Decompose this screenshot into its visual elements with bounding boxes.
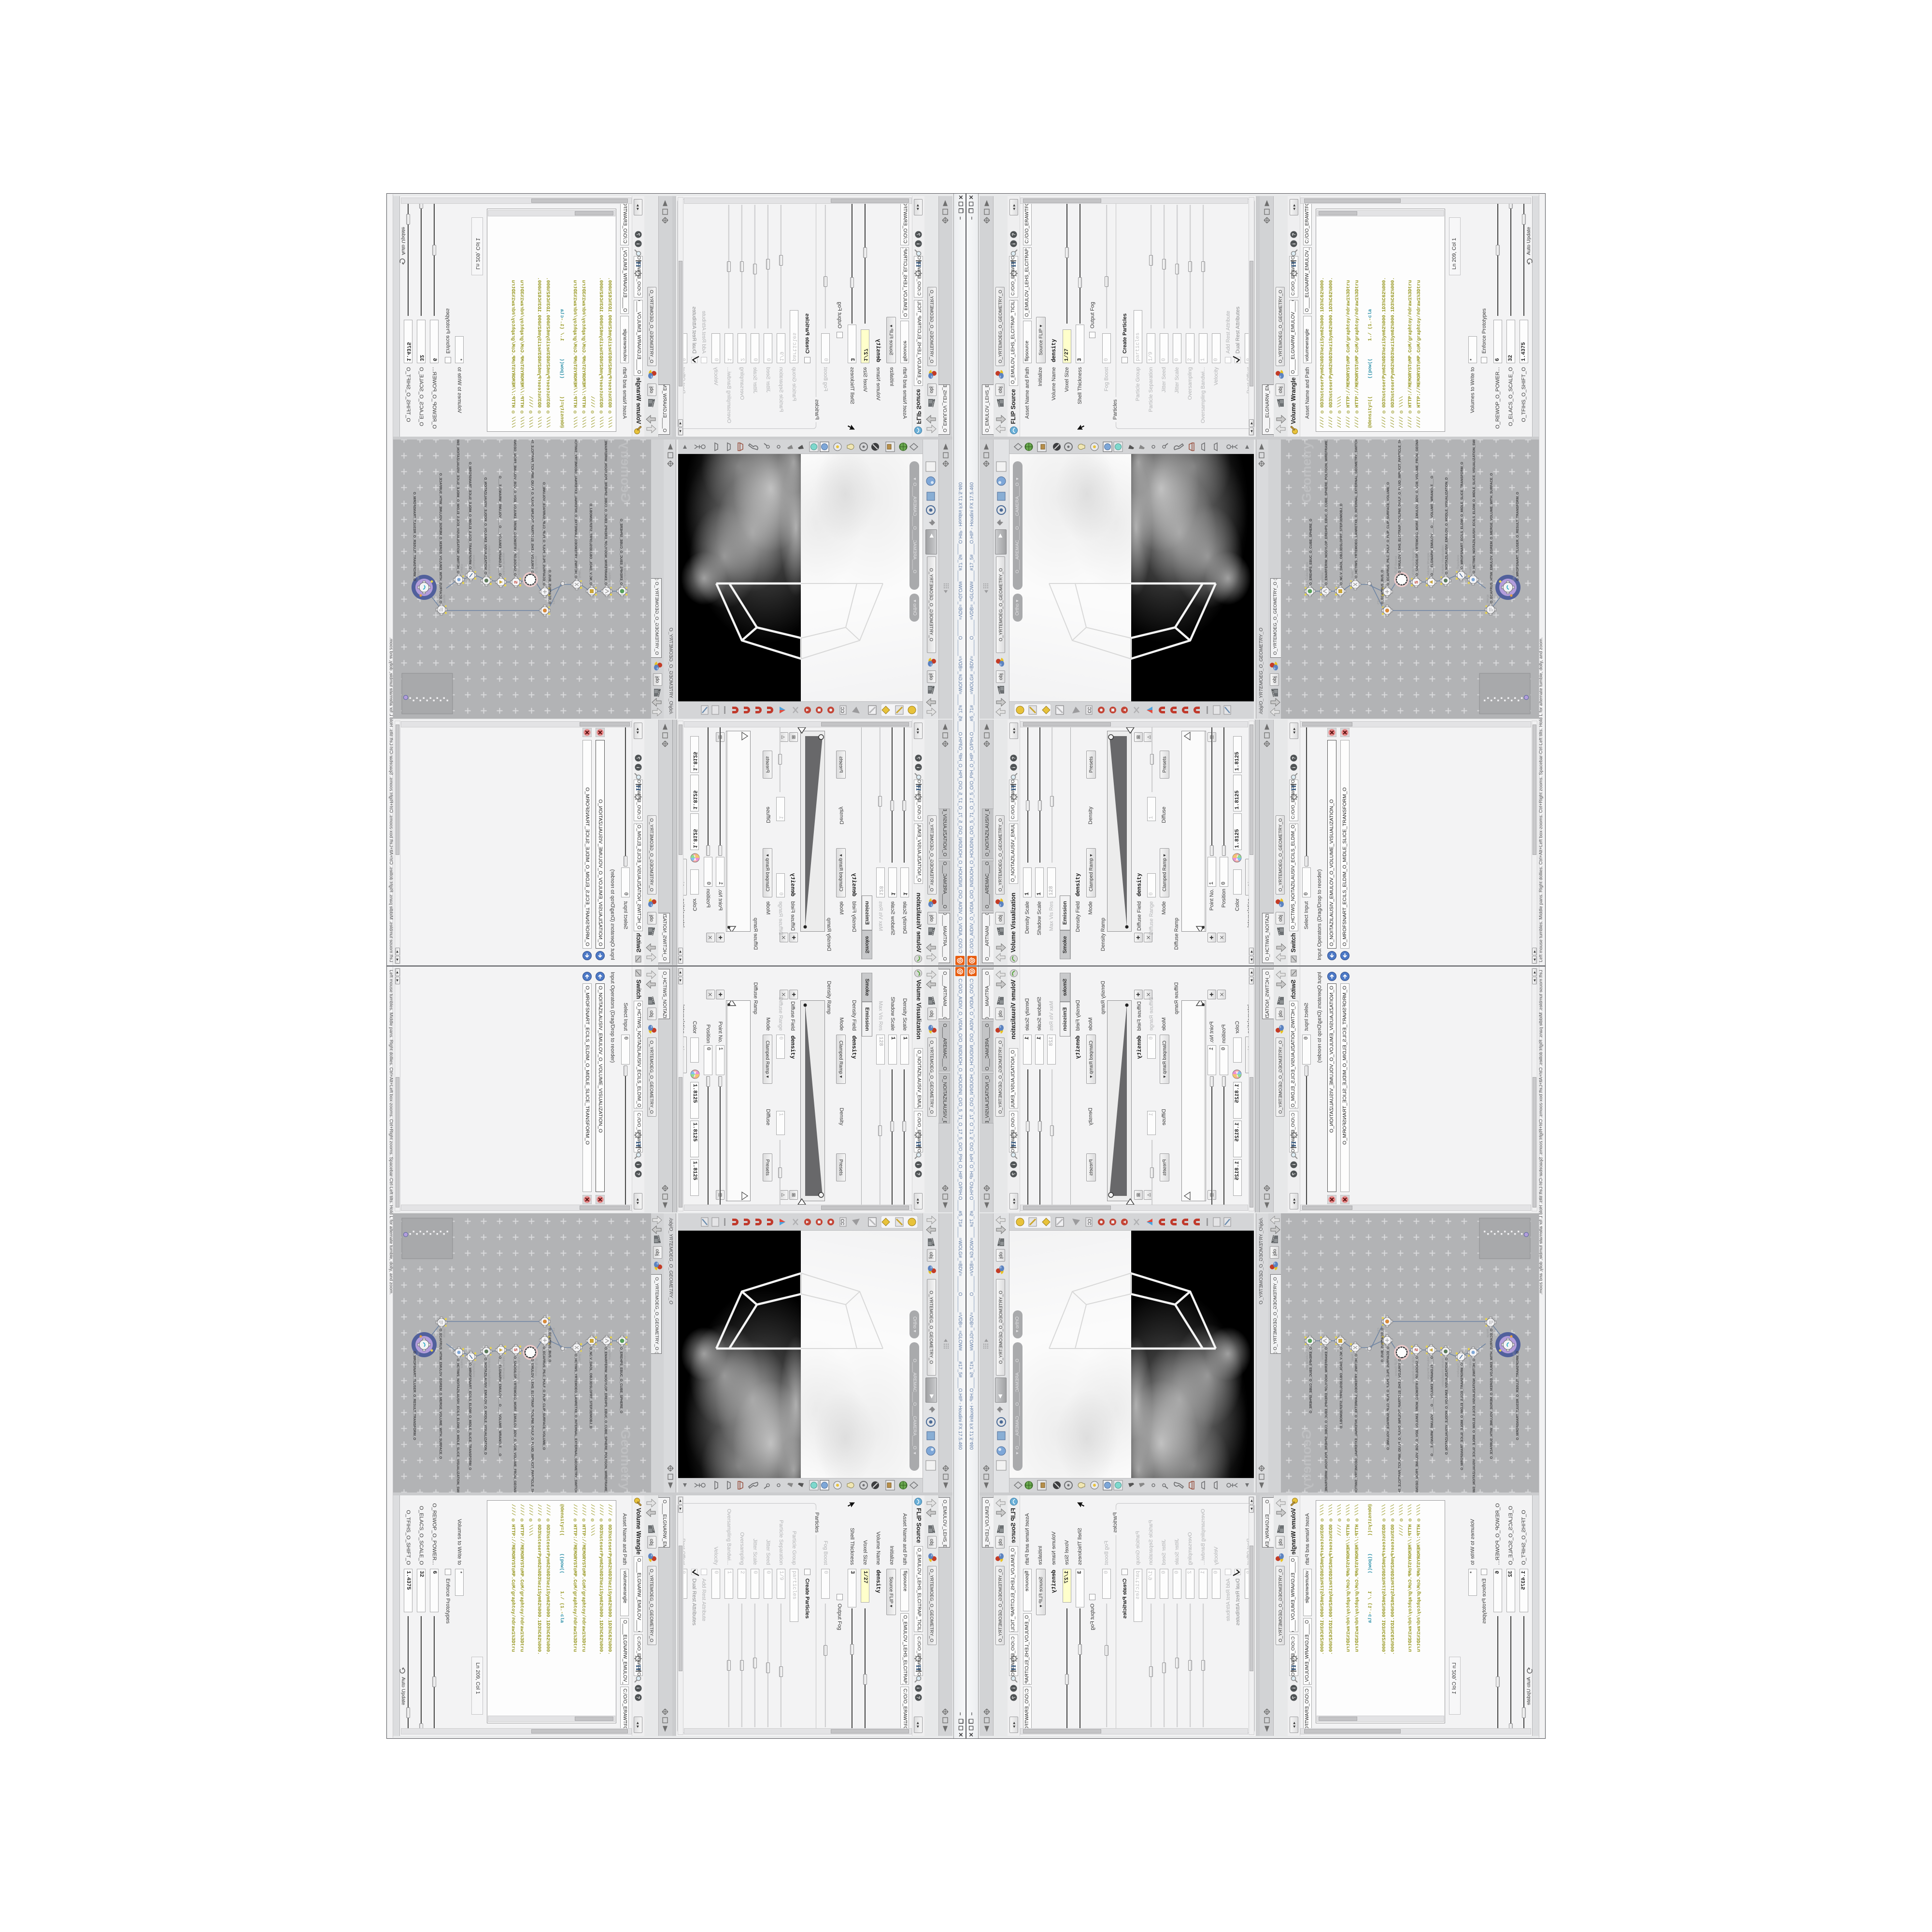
svg-text:O_NOITAZILAUSIV_EMULOV_O_MODLE: O_NOITAZILAUSIV_EMULOV_O_MODLE_VISUALIZA… xyxy=(483,477,487,574)
svg-text:Switch: Switch xyxy=(578,568,581,578)
svg-text:Clip: Clip xyxy=(1377,1328,1380,1334)
svg-text:O_EREHPS_EBUC_O_CUBE_SPHERE_O: O_EREHPS_EBUC_O_CUBE_SPHERE_O xyxy=(619,519,623,585)
svg-text:H: H xyxy=(915,1141,922,1147)
svg-text:H: H xyxy=(635,1141,642,1147)
svg-text:O_SNOGILOP_YRTEMOEG_MORF_EMULO: O_SNOGILOP_YRTEMOEG_MORF_EMULOV_BDV_O_VD… xyxy=(1416,1356,1419,1492)
svg-text:H: H xyxy=(635,1665,642,1671)
svg-text:PolyWire: PolyWire xyxy=(1321,1347,1324,1360)
svg-text:O_ECAFRUS_PILC_PULF_O_FLIP_CLI: O_ECAFRUS_PILC_PULF_O_FLIP_CLIP_SURFACE_… xyxy=(542,1347,545,1450)
svg-text:Switch: Switch xyxy=(460,564,463,573)
svg-text:Volume Wrangle: Volume Wrangle xyxy=(1427,1356,1430,1379)
svg-text:an_CubeSphere: an_CubeSphere xyxy=(1306,562,1309,585)
svg-text:H: H xyxy=(1010,785,1017,791)
svg-text:O_ECAFRUS_PILC_PULF_O_FLIP_CLI: O_ECAFRUS_PILC_PULF_O_FLIP_CLIP_SURFACE_… xyxy=(542,482,545,585)
svg-text:PolyWire: PolyWire xyxy=(608,572,611,585)
svg-text:O_ECAFRUS_HTIW_EMULOV_EGREM_O_: O_ECAFRUS_HTIW_EMULOV_EGREM_O_MERGE_VOLU… xyxy=(439,473,442,603)
svg-text:O_ECAFRUS_HTIW_EMULOV_EGREM_O_: O_ECAFRUS_HTIW_EMULOV_EGREM_O_MERGE_VOLU… xyxy=(1490,1329,1493,1459)
svg-text:Transform: Transform xyxy=(1457,555,1460,569)
svg-text:Transform: Transform xyxy=(472,1363,475,1377)
svg-text:O_ECAFRUS_BUS_O: O_ECAFRUS_BUS_O xyxy=(1381,569,1384,604)
svg-text:?: ? xyxy=(1292,233,1297,236)
svg-text:S: S xyxy=(513,1349,518,1351)
svg-text:O_SNOGILOP_YRTEMOEG_MORF_EMULO: O_SNOGILOP_YRTEMOEG_MORF_EMULOV_BDV_O_VD… xyxy=(513,1356,516,1492)
svg-text:H: H xyxy=(1290,1665,1297,1671)
svg-text:H: H xyxy=(1290,261,1297,267)
svg-text:Merge: Merge xyxy=(442,594,446,603)
svg-text:O_EREHPS_EBUC_O_CUBE_SPHERE_O: O_EREHPS_EBUC_O_CUBE_SPHERE_O xyxy=(1309,1347,1313,1413)
svg-text:O_HCTIWS_YRTEMOEG_LANRETXE_O_I: O_HCTIWS_YRTEMOEG_LANRETXE_O_INTERNAL_EX… xyxy=(574,440,577,578)
svg-text:Merge: Merge xyxy=(1486,1329,1490,1338)
svg-text:Volume Visualization: Volume Visualization xyxy=(487,545,491,574)
svg-text:?: ? xyxy=(635,233,640,236)
svg-text:H: H xyxy=(1010,261,1017,267)
svg-text:Transform: Transform xyxy=(1512,567,1516,581)
svg-text:?: ? xyxy=(1292,1173,1297,1176)
svg-text:H: H xyxy=(1290,1141,1297,1147)
svg-text:VDB from Polygons: VDB from Polygons xyxy=(517,1356,520,1384)
svg-text:H: H xyxy=(915,261,922,267)
svg-text:O_MROFSNART_TLUSER_O_RESULT_TR: O_MROFSNART_TLUSER_O_RESULT_TRANSFORM_O xyxy=(1516,492,1520,581)
svg-text:O_ECAFRUS_PILC_PULF_O_FLIP_CLI: O_ECAFRUS_PILC_PULF_O_FLIP_CLIP_SURFACE_… xyxy=(1387,482,1390,585)
svg-text:O_EMULOV_LEHS_ELCITRAP_TICILPM: O_EMULOV_LEHS_ELCITRAP_TICILPMI_DIULF_O_… xyxy=(530,440,534,573)
svg-text:O_NC.V_DAOL_OBJ.3DSLOFRT_STEP.: O_NC.V_DAOL_OBJ.3DSLOFRT_STEP.3DMOBJ_D xyxy=(589,1347,592,1428)
svg-text:Volume Wrangle: Volume Wrangle xyxy=(502,553,505,576)
svg-text:?: ? xyxy=(1292,756,1297,759)
svg-text:O_HCTIWS_NOITAZILAUSIV_ECILS_E: O_HCTIWS_NOITAZILAUSIV_ECILS_ELDIM_O_MID… xyxy=(1473,440,1476,573)
svg-text:?: ? xyxy=(1011,233,1017,236)
svg-text:FLIP Source: FLIP Source xyxy=(1394,1359,1398,1376)
svg-text:i: i xyxy=(635,243,640,245)
svg-text:O_MROFSNART_ECILS_ELDIM_O_MIDL: O_MROFSNART_ECILS_ELDIM_O_MIDLE_SLICE_TR… xyxy=(1461,462,1464,569)
svg-text:Switch: Switch xyxy=(1469,564,1472,573)
svg-text:i: i xyxy=(1292,1164,1297,1165)
svg-text:?: ? xyxy=(915,756,921,759)
svg-text:O___ELGNARW_EMULOV___O____VOLU: O___ELGNARW_EMULOV___O____VOLUME_WRANGLE… xyxy=(1431,1356,1434,1456)
svg-text:Transform: Transform xyxy=(1512,1351,1516,1365)
svg-text:Volume Visualization: Volume Visualization xyxy=(1441,1358,1445,1387)
svg-text:an_CubeSphere: an_CubeSphere xyxy=(623,562,626,585)
svg-text:O_NC.V_DAOL_OBJ.3DSLOFRT_STEP.: O_NC.V_DAOL_OBJ.3DSLOFRT_STEP.3DMOBJ_D xyxy=(1340,504,1343,585)
svg-text:i: i xyxy=(635,767,640,768)
svg-text:O_HCTIWS_NOITAZILAUSIV_ECILS_E: O_HCTIWS_NOITAZILAUSIV_ECILS_ELDIM_O_MID… xyxy=(456,440,459,573)
svg-text:i: i xyxy=(1011,1688,1017,1689)
svg-text:Transform: Transform xyxy=(416,1351,420,1365)
svg-text:i: i xyxy=(915,1164,921,1165)
svg-text:H: H xyxy=(1010,1141,1017,1147)
svg-text:O_MROFSNART_TLUSER_O_RESULT_TR: O_MROFSNART_TLUSER_O_RESULT_TRANSFORM_O xyxy=(1516,1351,1520,1440)
svg-text:VDB from Polygons: VDB from Polygons xyxy=(1412,1356,1415,1384)
svg-text:O_SNOGILOP_YRTEMOEG_MORF_EMULO: O_SNOGILOP_YRTEMOEG_MORF_EMULOV_BDV_O_VD… xyxy=(513,440,516,576)
svg-text:?: ? xyxy=(915,1173,921,1176)
svg-text:Clip: Clip xyxy=(552,598,555,604)
svg-text:?: ? xyxy=(915,1696,921,1699)
svg-text:O_ECAFRUS_BUS_O: O_ECAFRUS_BUS_O xyxy=(548,1328,551,1363)
svg-text:an_CubeSphere: an_CubeSphere xyxy=(623,1347,626,1370)
svg-text:O_EMARFERIW_NOGYLOP_EREHPS_EBU: O_EMARFERIW_NOGYLOP_EREHPS_EBUC_O_CUBE_S… xyxy=(604,1347,607,1492)
svg-text:?: ? xyxy=(635,1696,640,1699)
svg-text:i: i xyxy=(635,1688,640,1689)
svg-text:Clip: Clip xyxy=(1377,598,1380,604)
svg-text:O_ECAFRUS_HTIW_EMULOV_EGREM_O_: O_ECAFRUS_HTIW_EMULOV_EGREM_O_MERGE_VOLU… xyxy=(1490,473,1493,603)
svg-text:PolyWire: PolyWire xyxy=(1321,572,1324,585)
svg-text:O_NOITAZILAUSIV_EMULOV_O_MODLE: O_NOITAZILAUSIV_EMULOV_O_MODLE_VISUALIZA… xyxy=(1445,1358,1449,1455)
svg-text:O_EREHPS_EBUC_O_CUBE_SPHERE_O: O_EREHPS_EBUC_O_CUBE_SPHERE_O xyxy=(1309,519,1313,585)
svg-text:O_ECAFRUS_BUS_O: O_ECAFRUS_BUS_O xyxy=(548,569,551,604)
svg-text:Geometry: Geometry xyxy=(618,442,633,503)
svg-text:O_HCTIWS_YRTEMOEG_LANRETXE_O_I: O_HCTIWS_YRTEMOEG_LANRETXE_O_INTERNAL_EX… xyxy=(1355,440,1358,578)
svg-text:O_ECAFRUS_PILC_PULF_O_FLIP_CLI: O_ECAFRUS_PILC_PULF_O_FLIP_CLIP_SURFACE_… xyxy=(1387,1347,1390,1450)
svg-text:O_HCTIWS_NOITAZILAUSIV_ECILS_E: O_HCTIWS_NOITAZILAUSIV_ECILS_ELDIM_O_MID… xyxy=(1473,1359,1476,1492)
svg-text:H: H xyxy=(1010,1665,1017,1671)
svg-text:Volume Visualization: Volume Visualization xyxy=(1441,545,1445,574)
svg-text:PolyWire: PolyWire xyxy=(608,1347,611,1360)
svg-text:?: ? xyxy=(915,233,921,236)
svg-text:File: File xyxy=(1336,1347,1339,1352)
svg-text:H: H xyxy=(1290,785,1297,791)
svg-text:H: H xyxy=(915,1665,922,1671)
svg-text:O_EMULOV_LEHS_ELCITRAP_TICILPM: O_EMULOV_LEHS_ELCITRAP_TICILPMI_DIULF_O_… xyxy=(530,1359,534,1492)
svg-text:O_EMARFERIW_NOGYLOP_EREHPS_EBU: O_EMARFERIW_NOGYLOP_EREHPS_EBUC_O_CUBE_S… xyxy=(604,440,607,585)
svg-text:FLIP Source: FLIP Source xyxy=(534,556,538,573)
svg-text:i: i xyxy=(1011,1164,1017,1165)
svg-text:H: H xyxy=(915,785,922,791)
svg-text:i: i xyxy=(915,243,921,245)
svg-text:CC: CC xyxy=(1087,707,1092,713)
svg-text:O___ELGNARW_EMULOV___O____VOLU: O___ELGNARW_EMULOV___O____VOLUME_WRANGLE… xyxy=(498,1356,501,1456)
svg-text:O_MROFSNART_ECILS_ELDIM_O_MIDL: O_MROFSNART_ECILS_ELDIM_O_MIDLE_SLICE_TR… xyxy=(468,1363,471,1470)
svg-text:O_HCTIWS_YRTEMOEG_LANRETXE_O_I: O_HCTIWS_YRTEMOEG_LANRETXE_O_INTERNAL_EX… xyxy=(574,1354,577,1492)
svg-text:O_NC.V_DAOL_OBJ.3DSLOFRT_STEP.: O_NC.V_DAOL_OBJ.3DSLOFRT_STEP.3DMOBJ_D xyxy=(589,504,592,585)
svg-text:i: i xyxy=(1292,767,1297,768)
svg-text:i: i xyxy=(1292,243,1297,245)
svg-text:File: File xyxy=(593,580,596,585)
svg-text:CC: CC xyxy=(840,707,845,713)
svg-text:O___ELGNARW_EMULOV___O____VOLU: O___ELGNARW_EMULOV___O____VOLUME_WRANGLE… xyxy=(498,476,501,576)
svg-text:Geometry: Geometry xyxy=(618,1429,633,1490)
svg-text:Switch: Switch xyxy=(1351,568,1354,578)
svg-text:O_MROFSNART_ECILS_ELDIM_O_MIDL: O_MROFSNART_ECILS_ELDIM_O_MIDLE_SLICE_TR… xyxy=(468,462,471,569)
svg-text:Transform: Transform xyxy=(472,555,475,569)
svg-text:O_EMULOV_LEHS_ELCITRAP_TICILPM: O_EMULOV_LEHS_ELCITRAP_TICILPMI_DIULF_O_… xyxy=(1398,440,1402,573)
svg-text:O___ELGNARW_EMULOV___O____VOLU: O___ELGNARW_EMULOV___O____VOLUME_WRANGLE… xyxy=(1431,476,1434,576)
svg-text:O_MROFSNART_ECILS_ELDIM_O_MIDL: O_MROFSNART_ECILS_ELDIM_O_MIDLE_SLICE_TR… xyxy=(1461,1363,1464,1470)
svg-text:Transform: Transform xyxy=(1457,1363,1460,1377)
svg-text:FLIP Source: FLIP Source xyxy=(534,1359,538,1376)
svg-text:?: ? xyxy=(1011,1696,1017,1699)
svg-text:?: ? xyxy=(1011,1173,1017,1176)
svg-text:O_NOITAZILAUSIV_EMULOV_O_MODLE: O_NOITAZILAUSIV_EMULOV_O_MODLE_VISUALIZA… xyxy=(483,1358,487,1455)
svg-text:Switch: Switch xyxy=(460,1359,463,1368)
svg-text:File: File xyxy=(1336,580,1339,585)
svg-text:O_NOITAZILAUSIV_EMULOV_O_MODLE: O_NOITAZILAUSIV_EMULOV_O_MODLE_VISUALIZA… xyxy=(1445,477,1449,574)
svg-text:O_NC.V_DAOL_OBJ.3DSLOFRT_STEP.: O_NC.V_DAOL_OBJ.3DSLOFRT_STEP.3DMOBJ_D xyxy=(1340,1347,1343,1428)
svg-text:?: ? xyxy=(1011,756,1017,759)
svg-text:H: H xyxy=(635,785,642,791)
svg-text:i: i xyxy=(1011,243,1017,245)
svg-text:O_SNOGILOP_YRTEMOEG_MORF_EMULO: O_SNOGILOP_YRTEMOEG_MORF_EMULOV_BDV_O_VD… xyxy=(1416,440,1419,576)
svg-text:O_ECAFRUS_BUS_O: O_ECAFRUS_BUS_O xyxy=(1381,1328,1384,1363)
svg-text:O_EMULOV_LEHS_ELCITRAP_TICILPM: O_EMULOV_LEHS_ELCITRAP_TICILPMI_DIULF_O_… xyxy=(1398,1359,1402,1492)
svg-text:O_EMARFERIW_NOGYLOP_EREHPS_EBU: O_EMARFERIW_NOGYLOP_EREHPS_EBUC_O_CUBE_S… xyxy=(1325,440,1328,585)
svg-text:?: ? xyxy=(635,1173,640,1176)
svg-text:O_EREHPS_EBUC_O_CUBE_SPHERE_O: O_EREHPS_EBUC_O_CUBE_SPHERE_O xyxy=(619,1347,623,1413)
svg-text:Geometry: Geometry xyxy=(1299,1429,1314,1490)
svg-text:?: ? xyxy=(635,756,640,759)
svg-text:O_MROFSNART_TLUSER_O_RESULT_TR: O_MROFSNART_TLUSER_O_RESULT_TRANSFORM_O xyxy=(412,492,416,581)
svg-text:an_CubeSphere: an_CubeSphere xyxy=(1306,1347,1309,1370)
svg-text:Volume Visualization: Volume Visualization xyxy=(487,1358,491,1387)
svg-text:i: i xyxy=(635,1164,640,1165)
svg-text:S: S xyxy=(513,581,518,583)
svg-text:Volume Wrangle: Volume Wrangle xyxy=(1427,553,1430,576)
svg-text:Merge: Merge xyxy=(1486,594,1490,603)
svg-text:Volume Wrangle: Volume Wrangle xyxy=(502,1356,505,1379)
svg-text:i: i xyxy=(1292,1688,1297,1689)
svg-text:Switch: Switch xyxy=(1469,1359,1472,1368)
svg-text:O_HCTIWS_NOITAZILAUSIV_ECILS_E: O_HCTIWS_NOITAZILAUSIV_ECILS_ELDIM_O_MID… xyxy=(456,1359,459,1492)
svg-text:File: File xyxy=(593,1347,596,1352)
svg-text:Transform: Transform xyxy=(416,567,420,581)
svg-text:S: S xyxy=(1414,581,1419,583)
svg-text:VDB from Polygons: VDB from Polygons xyxy=(1412,548,1415,576)
svg-text:?: ? xyxy=(1292,1696,1297,1699)
svg-text:S: S xyxy=(1414,1349,1419,1351)
svg-text:CC: CC xyxy=(1087,1219,1092,1225)
svg-text:i: i xyxy=(1011,767,1017,768)
svg-text:O_MROFSNART_TLUSER_O_RESULT_TR: O_MROFSNART_TLUSER_O_RESULT_TRANSFORM_O xyxy=(412,1351,416,1440)
svg-text:CC: CC xyxy=(840,1219,845,1225)
svg-text:i: i xyxy=(915,767,921,768)
svg-text:Merge: Merge xyxy=(442,1329,446,1338)
svg-text:VDB from Polygons: VDB from Polygons xyxy=(517,548,520,576)
svg-text:O_ECAFRUS_HTIW_EMULOV_EGREM_O_: O_ECAFRUS_HTIW_EMULOV_EGREM_O_MERGE_VOLU… xyxy=(439,1329,442,1459)
svg-text:Clip: Clip xyxy=(552,1328,555,1334)
svg-text:Switch: Switch xyxy=(1351,1354,1354,1364)
svg-text:H: H xyxy=(635,261,642,267)
svg-text:i: i xyxy=(915,1688,921,1689)
svg-text:Geometry: Geometry xyxy=(1299,442,1314,503)
svg-text:Switch: Switch xyxy=(578,1354,581,1364)
svg-text:FLIP Source: FLIP Source xyxy=(1394,556,1398,573)
svg-text:O_EMARFERIW_NOGYLOP_EREHPS_EBU: O_EMARFERIW_NOGYLOP_EREHPS_EBUC_O_CUBE_S… xyxy=(1325,1347,1328,1492)
svg-text:O_HCTIWS_YRTEMOEG_LANRETXE_O_I: O_HCTIWS_YRTEMOEG_LANRETXE_O_INTERNAL_EX… xyxy=(1355,1354,1358,1492)
